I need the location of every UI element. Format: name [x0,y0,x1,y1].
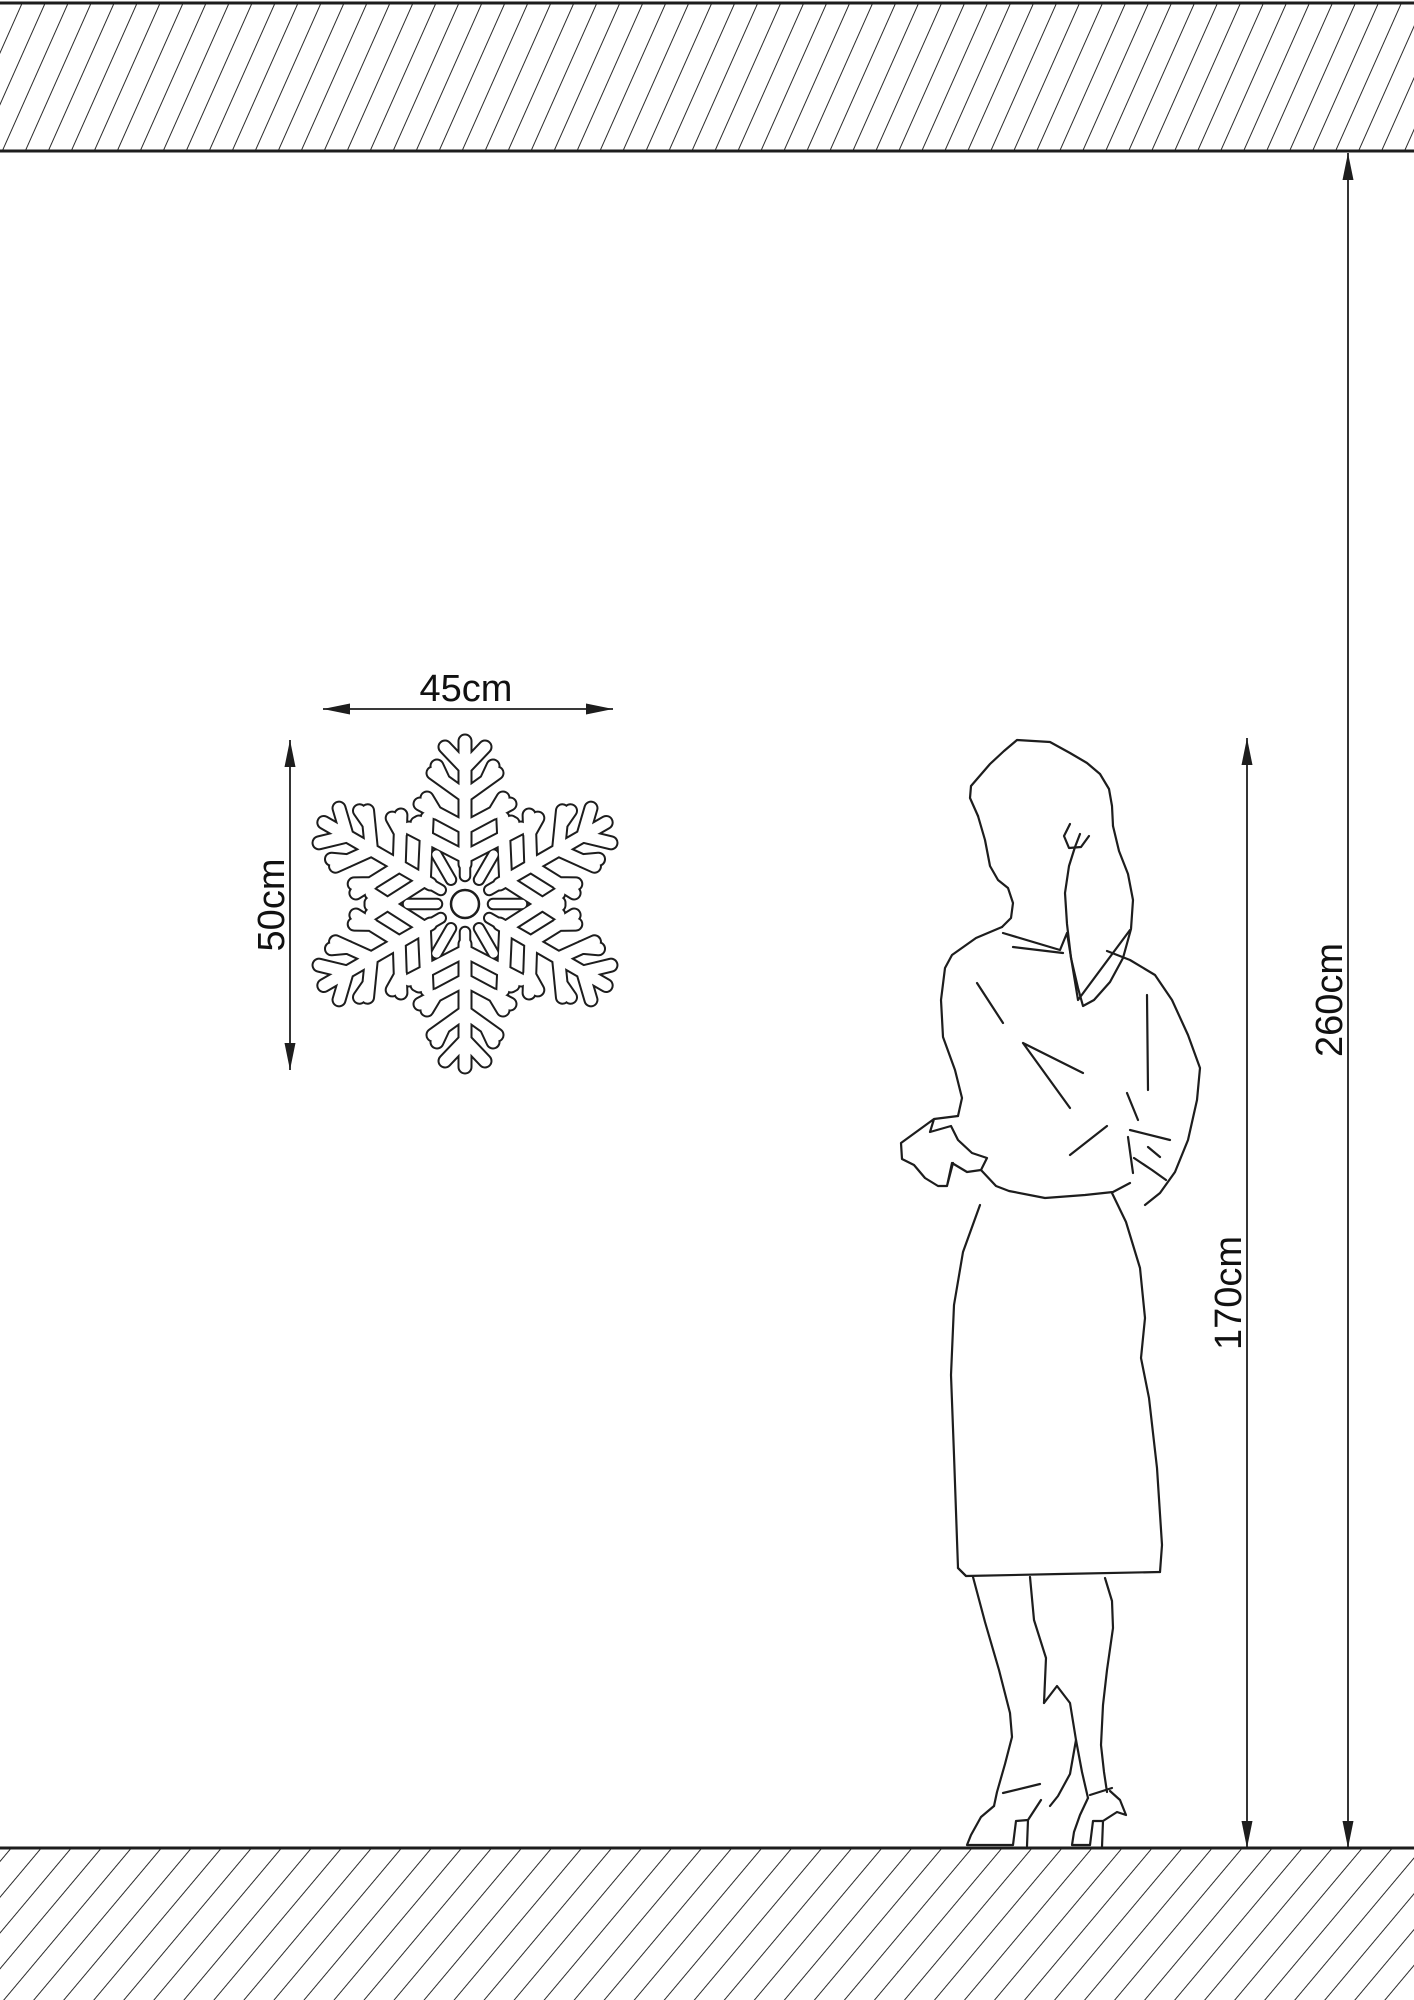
size-diagram: 45cm 50cm 170cm 260cm [0,0,1414,2000]
woman-left-shoe [967,1784,1041,1846]
woman-left-hand [901,1116,987,1186]
arrow-down-icon [1242,1821,1253,1848]
woman-skirt-hem [958,1568,1160,1576]
dim-product-height-label: 50cm [251,859,293,952]
woman-left-leg [973,1577,1046,1806]
dim-person-height: 170cm [1208,738,1253,1848]
woman-left-arm-edge [941,927,1002,1116]
dim-product-height: 50cm [251,740,296,1070]
woman-right-leg [1076,1578,1113,1798]
woman-head-outline [970,740,1113,826]
floor-band [0,1848,1414,2000]
dim-person-height-label: 170cm [1208,1236,1250,1350]
snowflake-center-ring [451,890,479,918]
floor-hatch [0,1849,1414,2000]
woman-right-arm-inner [1127,995,1170,1180]
dim-product-width-label: 45cm [420,668,513,710]
dim-product-width: 45cm [323,668,613,715]
woman-face-neck-line [978,816,1013,927]
ceiling-band [0,3,1414,151]
woman-right-arm-edge [1107,951,1200,1205]
woman-skirt-right-edge [1112,1193,1162,1572]
woman-far-calf [1044,1686,1076,1806]
woman-standing-figure [901,740,1200,1847]
arrow-left-icon [323,704,350,715]
woman-right-shoe [1072,1788,1126,1847]
dim-ceiling-height: 260cm [1309,153,1354,1848]
arrow-up-icon [1343,153,1354,180]
woman-jacket-wrinkles [977,983,1107,1155]
woman-jacket-hem [981,1170,1130,1198]
arrow-up-icon [285,740,296,767]
woman-collar [1003,930,1130,1000]
woman-skirt-left-edge [951,1205,980,1576]
arrow-up-icon [1242,738,1253,765]
ceiling-hatch [0,4,1414,151]
dim-ceiling-height-label: 260cm [1309,943,1351,1057]
arrow-down-icon [285,1043,296,1070]
arrow-right-icon [586,704,613,715]
size-diagram-page: 45cm 50cm 170cm 260cm [0,0,1414,2000]
arrow-down-icon [1343,1821,1354,1848]
